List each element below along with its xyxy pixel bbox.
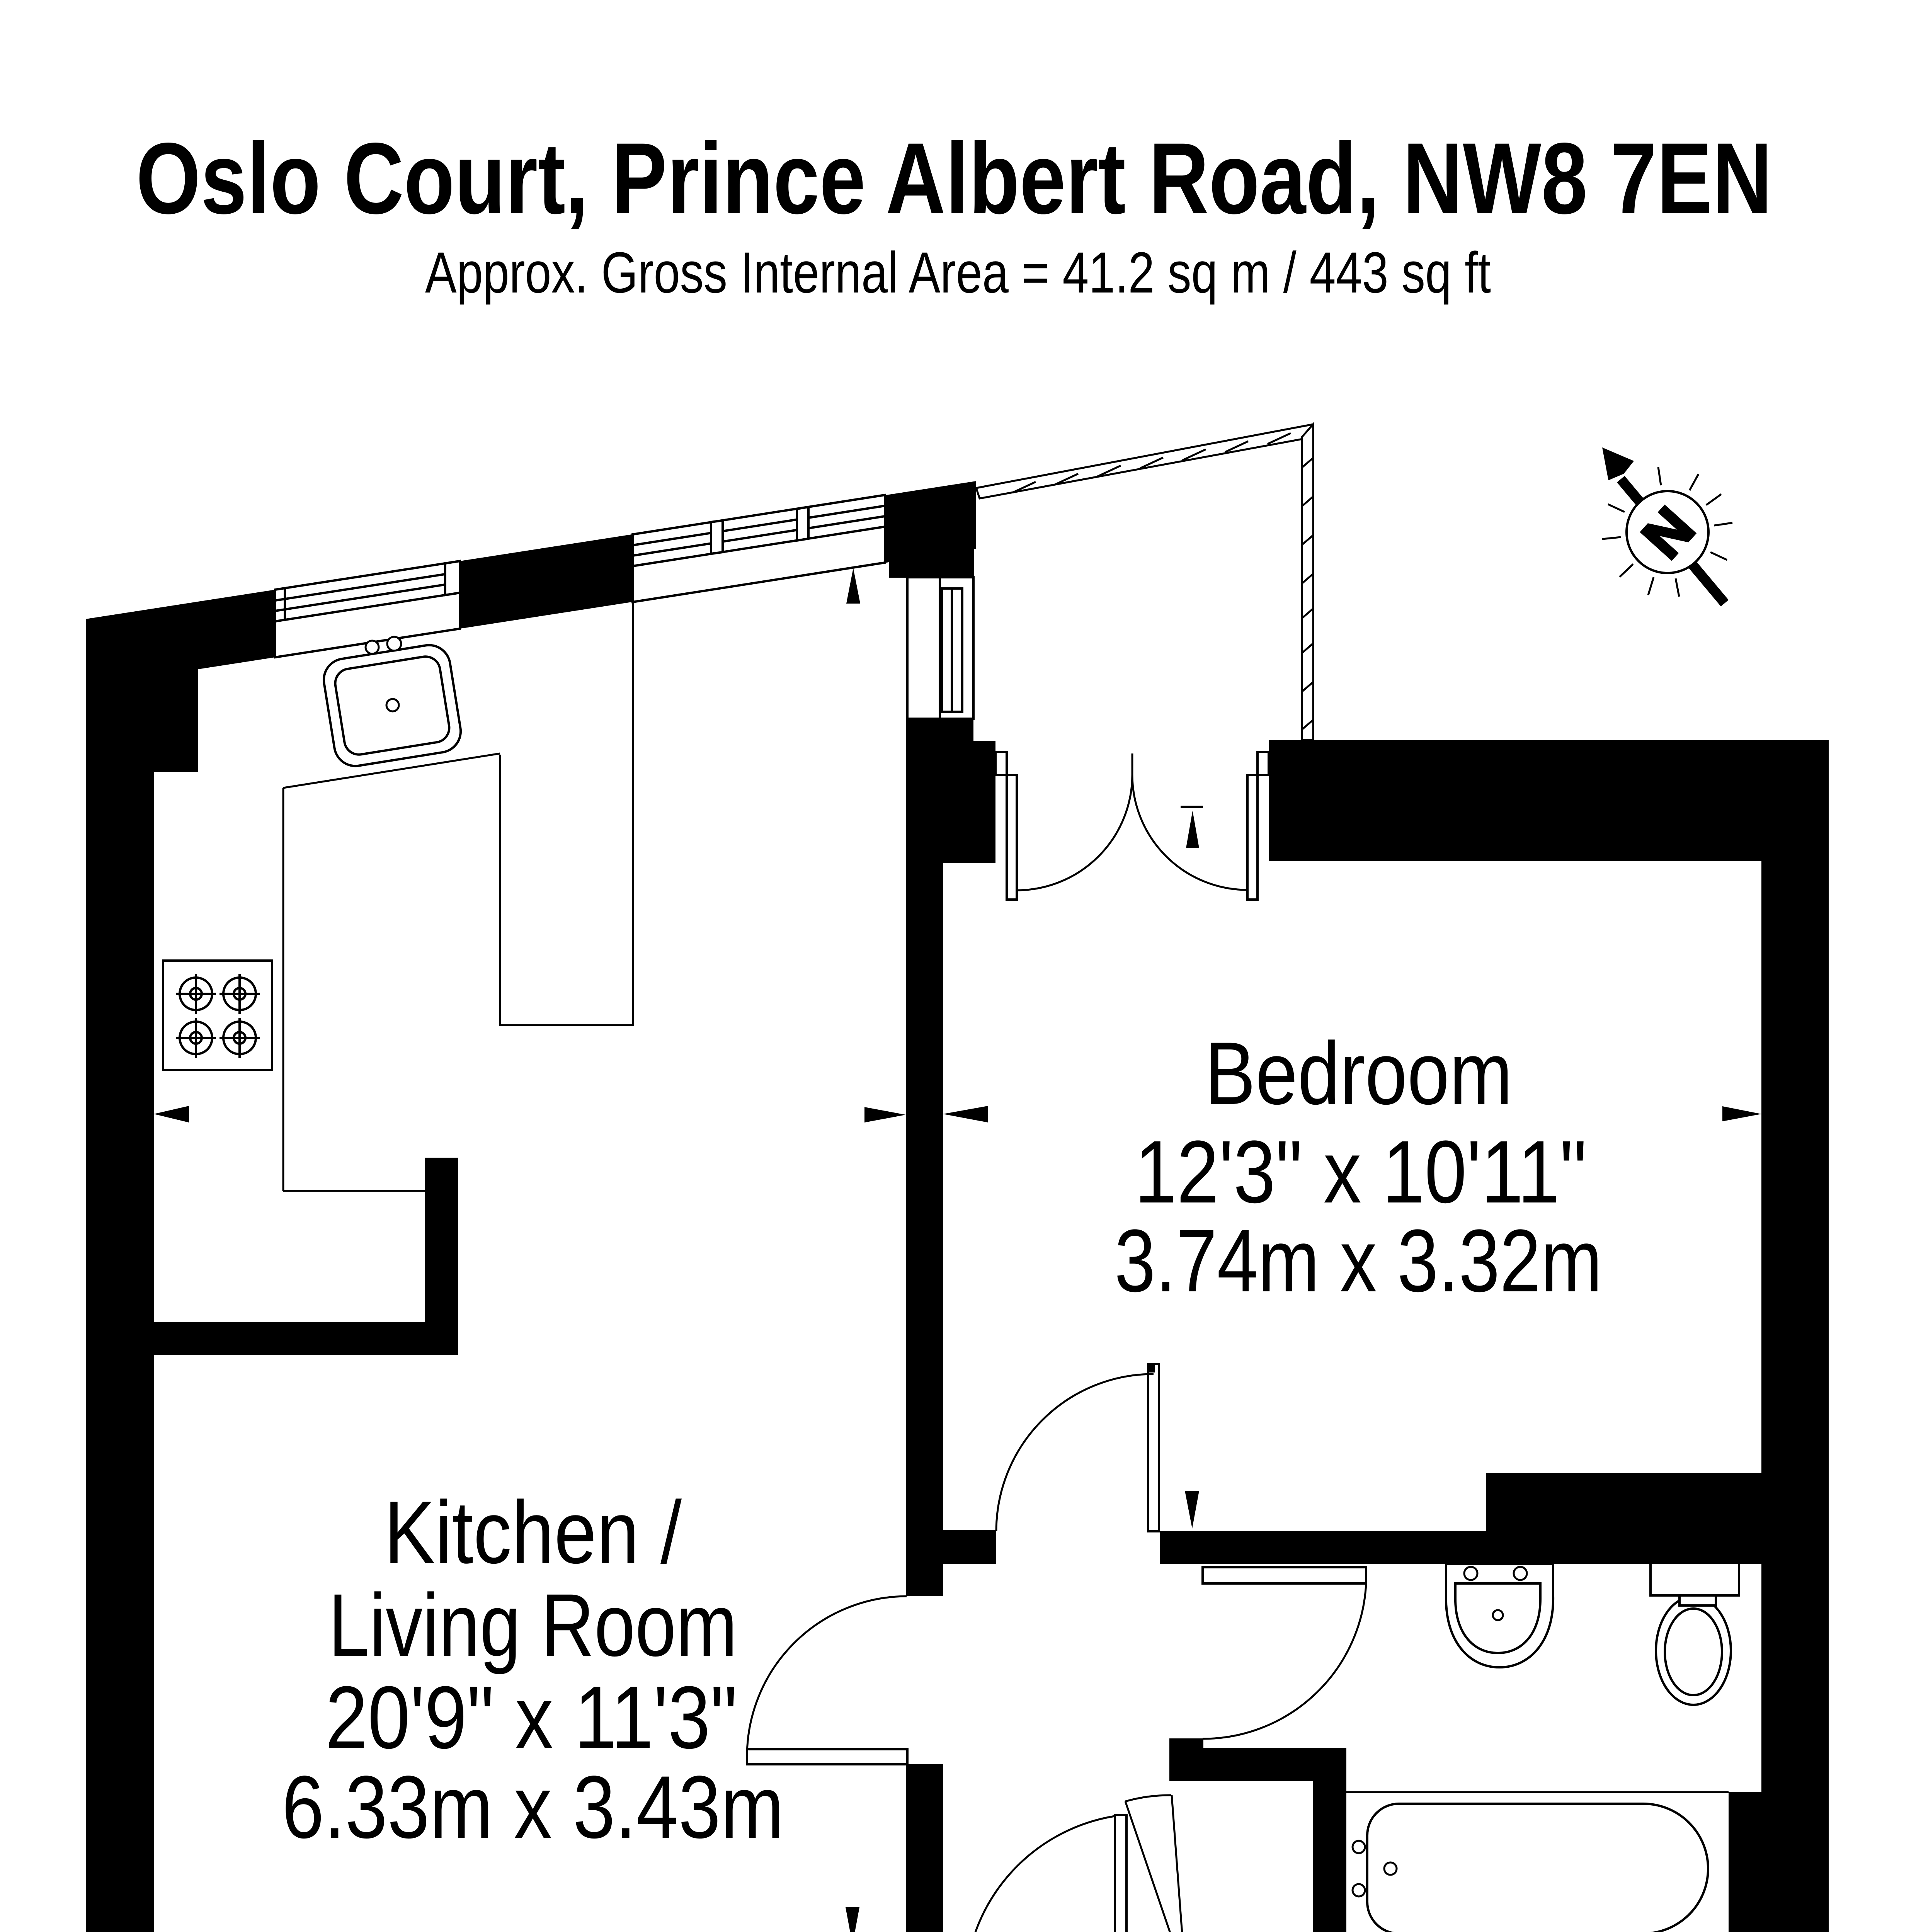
svg-text:6.33m x 3.43m: 6.33m x 3.43m: [282, 1757, 784, 1857]
svg-text:Kitchen /: Kitchen /: [384, 1483, 682, 1582]
svg-text:Living Room: Living Room: [328, 1575, 737, 1675]
svg-text:12'3" x 10'11": 12'3" x 10'11": [1135, 1122, 1587, 1221]
svg-text:3.74m x 3.32m: 3.74m x 3.32m: [1115, 1211, 1602, 1310]
svg-text:Bedroom: Bedroom: [1205, 1024, 1513, 1123]
svg-text:Approx. Gross Internal Area =: Approx. Gross Internal Area = 41.2 sq m …: [425, 240, 1491, 305]
svg-text:20'9" x 11'3": 20'9" x 11'3": [325, 1668, 737, 1767]
svg-text:Oslo Court, Prince Albert Road: Oslo Court, Prince Albert Road, NW8 7EN: [136, 122, 1772, 235]
